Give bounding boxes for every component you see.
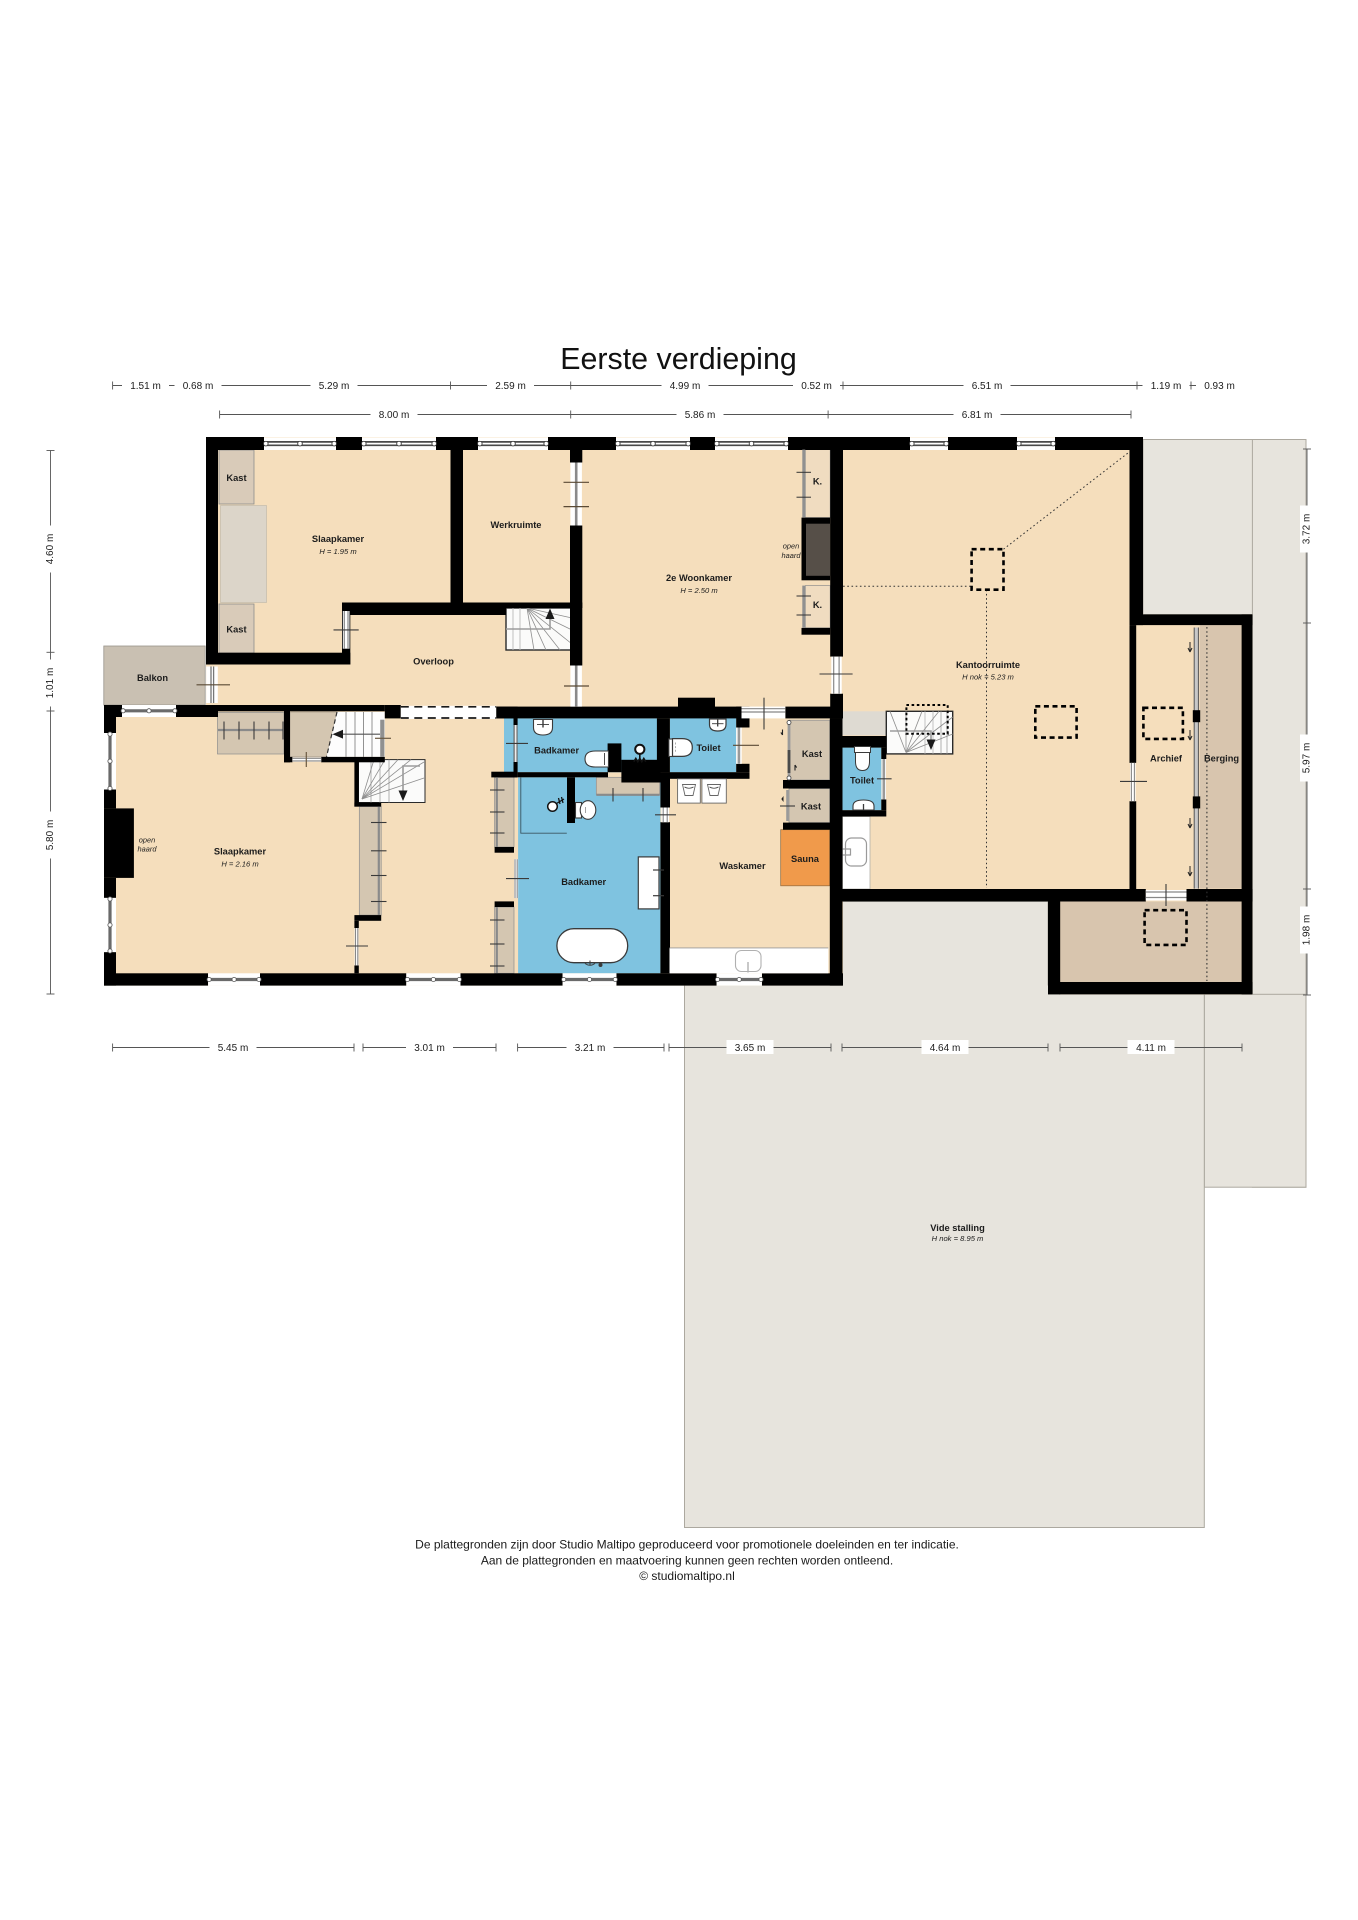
svg-text:Sauna: Sauna [791,854,820,864]
svg-text:K.: K. [813,477,822,487]
svg-text:1.51 m: 1.51 m [130,381,161,392]
svg-text:H nok = 5.23 m: H nok = 5.23 m [962,673,1014,682]
svg-text:Kast: Kast [801,802,821,812]
svg-text:Werkruimte: Werkruimte [491,520,542,530]
svg-text:5.45 m: 5.45 m [218,1043,249,1054]
svg-text:Aan de plattegronden en maatvo: Aan de plattegronden en maatvoering kunn… [481,1554,893,1568]
svg-text:Overloop: Overloop [413,657,454,667]
svg-text:2.59 m: 2.59 m [495,381,526,392]
svg-text:Kast: Kast [226,473,246,483]
svg-text:H = 1.95 m: H = 1.95 m [319,547,356,556]
svg-text:3.65 m: 3.65 m [735,1043,766,1054]
svg-text:Vide stalling: Vide stalling [930,1223,985,1233]
svg-text:Kast: Kast [226,625,246,635]
svg-text:Badkamer: Badkamer [534,746,579,756]
svg-text:8.00 m: 8.00 m [379,410,410,421]
svg-text:2e Woonkamer: 2e Woonkamer [666,573,732,583]
svg-text:Balkon: Balkon [137,673,168,683]
svg-text:4.60 m: 4.60 m [45,534,56,565]
svg-text:Berging: Berging [1204,754,1239,764]
svg-text:Toilet: Toilet [850,776,874,786]
svg-text:H = 2.50 m: H = 2.50 m [680,586,717,595]
svg-text:Eerste verdieping: Eerste verdieping [560,342,797,376]
svg-text:1.19 m: 1.19 m [1151,381,1182,392]
svg-text:K.: K. [813,600,822,610]
svg-text:1.98 m: 1.98 m [1302,915,1313,946]
svg-text:5.80 m: 5.80 m [45,820,56,851]
svg-text:5.29 m: 5.29 m [319,381,350,392]
svg-text:4.64 m: 4.64 m [930,1043,961,1054]
svg-text:3.01 m: 3.01 m [414,1043,445,1054]
svg-text:Kast: Kast [802,749,822,759]
svg-text:open: open [783,542,799,551]
svg-text:Slaapkamer: Slaapkamer [214,847,267,857]
svg-text:H = 2.16 m: H = 2.16 m [221,860,258,869]
svg-text:5.86 m: 5.86 m [685,410,716,421]
svg-text:Waskamer: Waskamer [719,861,766,871]
svg-text:H nok = 8.95 m: H nok = 8.95 m [932,1234,984,1243]
svg-text:Toilet: Toilet [696,743,720,753]
svg-text:Slaapkamer: Slaapkamer [312,534,365,544]
svg-text:open: open [139,836,155,845]
svg-text:3.21 m: 3.21 m [575,1043,606,1054]
svg-text:6.51 m: 6.51 m [972,381,1003,392]
svg-text:0.68 m: 0.68 m [183,381,214,392]
svg-text:0.93 m: 0.93 m [1204,381,1235,392]
svg-text:4.99 m: 4.99 m [670,381,701,392]
svg-text:6.81 m: 6.81 m [962,410,993,421]
svg-text:haard: haard [782,551,802,560]
svg-text:0.52 m: 0.52 m [801,381,832,392]
svg-text:haard: haard [138,845,158,854]
svg-text:De plattegronden zijn door Stu: De plattegronden zijn door Studio Maltip… [415,1538,959,1552]
svg-text:Badkamer: Badkamer [561,877,606,887]
svg-text:4.11 m: 4.11 m [1136,1043,1166,1054]
svg-text:Archief: Archief [1150,754,1183,764]
svg-text:3.72 m: 3.72 m [1302,514,1313,545]
svg-text:© studiomaltipo.nl: © studiomaltipo.nl [639,1569,735,1583]
svg-text:1.01 m: 1.01 m [45,668,56,699]
svg-text:Kantoorruimte: Kantoorruimte [956,660,1020,670]
svg-text:5.97 m: 5.97 m [1302,743,1313,774]
